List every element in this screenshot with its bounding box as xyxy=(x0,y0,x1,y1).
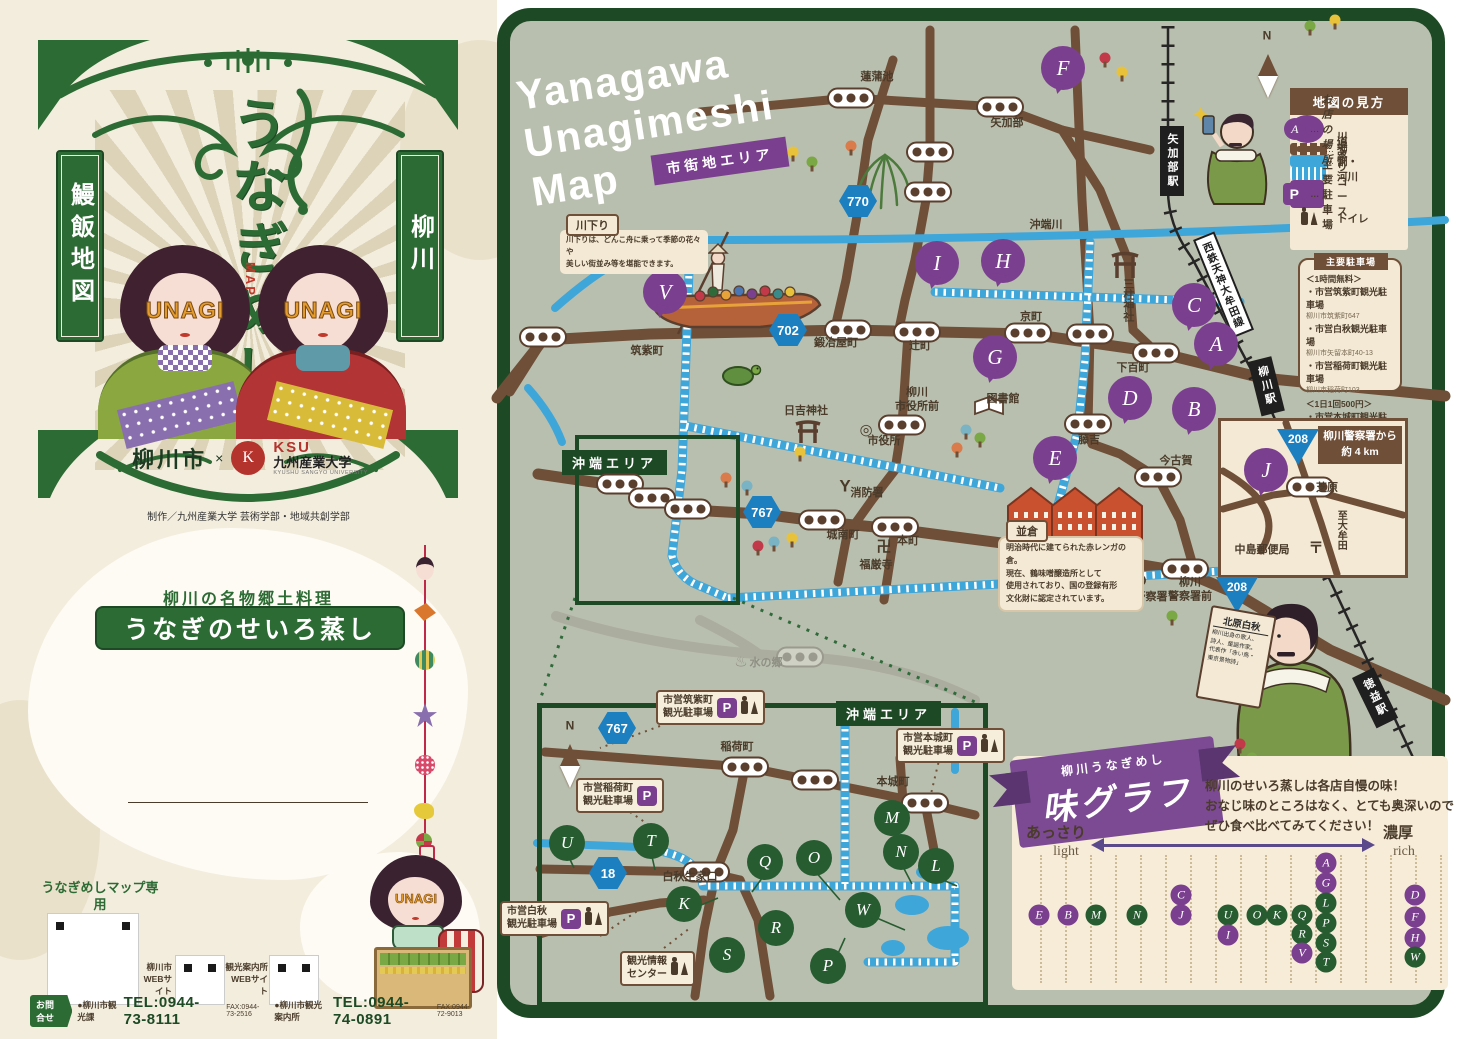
shop-marker: A xyxy=(1194,322,1238,366)
shop-marker-letter: S xyxy=(723,945,732,965)
taste-point: R xyxy=(1292,924,1313,945)
ksu-acronym: KSU xyxy=(273,440,368,457)
legend-label: 川下りコース xyxy=(1337,129,1348,219)
shop-marker: J xyxy=(1244,448,1288,492)
office2-tel: TEL:0944-74-0891 xyxy=(333,994,432,1028)
map-label: Y xyxy=(839,475,850,496)
taste-graph-description: 柳川のせいろ蒸しは各店自慢の味！ おなじ味のところはなく、とても奥深いので ぜひ… xyxy=(1205,776,1454,836)
bus-stop-icon xyxy=(664,499,712,520)
qr-code-info xyxy=(270,956,318,1004)
map-label: 芝原 xyxy=(1316,482,1338,496)
bus-stop-icon xyxy=(1132,343,1180,364)
intro-divider xyxy=(128,802,368,803)
parking-panel-label: 市営本城町 観光駐車場 xyxy=(903,733,953,758)
map-label: 筑紫町 xyxy=(631,345,664,359)
map-label: 柳川 市役所前 xyxy=(895,386,939,414)
shop-marker: F xyxy=(1041,46,1085,90)
taste-grid-column xyxy=(1215,855,1217,983)
woman-mouth xyxy=(180,333,190,337)
tree-icon xyxy=(846,141,857,152)
tree-icon xyxy=(1167,611,1178,622)
legend-icon xyxy=(1296,146,1322,152)
office1-fax: FAX:0944-73-2516 xyxy=(226,1004,269,1018)
map-label: 蓮蒲池 xyxy=(861,71,894,85)
taste-desc-line2: おなじ味のところはなく、とても奥深いので xyxy=(1205,796,1454,816)
parking-list-box: 主要駐車場 ＜1時間無料＞・市営筑紫町観光駐車場柳川市筑紫町647・市営白秋観光… xyxy=(1298,258,1402,392)
taste-point: P xyxy=(1316,913,1337,934)
taste-point: T xyxy=(1316,952,1337,973)
map-label: 今古賀 xyxy=(1160,455,1193,469)
taste-grid-column xyxy=(1365,855,1367,983)
shop-marker: H xyxy=(981,239,1025,283)
kimono-collar xyxy=(158,345,212,371)
bus-stop-icon xyxy=(827,88,875,109)
parking-row: ＜1時間無料＞ xyxy=(1306,273,1394,285)
scale-rich-en: rich xyxy=(1393,844,1415,860)
legend-dots: … xyxy=(1310,189,1319,199)
bus-stop-icon xyxy=(878,415,926,436)
police-header-line1: 柳川警察署から xyxy=(1320,429,1400,445)
shop-marker: B xyxy=(1172,387,1216,431)
tree-icon xyxy=(1305,21,1316,32)
sagemon-temari-green xyxy=(415,650,435,670)
map-label: N xyxy=(566,719,575,734)
shop-marker: G xyxy=(973,335,1017,379)
okinohata-tag-inset: 沖端エリア xyxy=(836,701,941,726)
namikura-tab: 並倉 xyxy=(1006,520,1048,542)
taste-point: M xyxy=(1086,905,1107,926)
web-label-line1: うなぎめしマップ専用 xyxy=(40,880,160,914)
legend-icon-glyph xyxy=(1296,170,1322,177)
parking-panel: 観光情報 センター xyxy=(620,951,695,986)
taste-point: D xyxy=(1405,885,1426,906)
parking-list-title: 主要駐車場 xyxy=(1314,253,1388,270)
taste-point: V xyxy=(1292,943,1313,964)
sagemon-temari-pink xyxy=(415,755,435,775)
sagemon-decoration xyxy=(424,545,426,845)
toilet-icon xyxy=(741,701,758,714)
tree-icon xyxy=(788,147,799,158)
namikura-line1: 明治時代に建てられた赤レンガの倉。 xyxy=(1006,542,1136,568)
scale-light-en: light xyxy=(1053,844,1079,860)
shop-marker-letter: T xyxy=(646,831,655,851)
tree-icon xyxy=(952,443,963,454)
toilet-icon xyxy=(585,912,602,925)
parking-panel-label: 観光情報 センター xyxy=(627,956,667,981)
map-label: 城南町 xyxy=(827,529,860,543)
taste-desc-line3: ぜひ食べ比べてみてください！ xyxy=(1205,816,1454,836)
tree-icon xyxy=(787,533,798,544)
girl-mouth xyxy=(412,917,419,920)
taste-grid-column xyxy=(1115,855,1117,983)
taste-point: J xyxy=(1171,905,1192,926)
tree-icon xyxy=(721,473,732,484)
taste-point: W xyxy=(1405,947,1426,968)
shop-marker: M xyxy=(874,800,910,836)
contact-tag: お問合せ xyxy=(30,995,72,1027)
sagemon-chick xyxy=(414,803,434,819)
shop-marker-letter: I xyxy=(934,251,941,276)
shop-marker-letter: V xyxy=(659,280,672,305)
shop-marker-letter: Q xyxy=(759,852,771,872)
shop-marker-letter: D xyxy=(1122,386,1137,411)
legend-row: A … お店の場所 xyxy=(1290,115,1324,143)
girl-unagi-band: UNAGI xyxy=(372,891,460,906)
tree-icon xyxy=(1117,67,1128,78)
shop-marker: O xyxy=(796,840,832,876)
shop-marker: P xyxy=(810,948,846,984)
taste-point: C xyxy=(1171,885,1192,906)
parking-icon: P xyxy=(561,909,581,929)
taste-grid-column xyxy=(1440,855,1442,983)
taste-point: I xyxy=(1218,925,1239,946)
namikura-line3: 使用されており、国の登録有形 xyxy=(1006,580,1136,593)
dish-title-box: うなぎのせいろ蒸し xyxy=(95,606,405,650)
shop-marker: I xyxy=(915,241,959,285)
legend-title: 地図の見方 xyxy=(1290,88,1408,115)
tree-icon xyxy=(961,425,972,436)
map-label: 京町 xyxy=(1020,311,1042,325)
okinohata-tag-main: 沖端エリア xyxy=(562,450,667,475)
university-name: 九州産業大学 xyxy=(273,456,368,470)
yanagawa-unagimeshi-map-page: 鰻飯地図 柳川 うなぎめし MAP UNAGI UNAGI 柳川市 × K xyxy=(0,0,1459,1039)
kawakudari-callout: 川下りは、どんこ舟に乗って季節の花々や 美しい街並み等を堪能できます。 xyxy=(560,230,708,274)
bus-stop-icon xyxy=(1064,414,1112,435)
cover-banner-right: 柳川 xyxy=(396,150,444,342)
bus-stop-icon xyxy=(1134,467,1182,488)
legend-icon xyxy=(1296,158,1322,164)
university-name-en: KYUSHU SANGYO UNIVERSITY xyxy=(273,470,368,476)
info-web-label: 観光案内所 WEBサイト xyxy=(224,962,268,998)
namikura-callout: 明治時代に建てられた赤レンガの倉。 現在、鶴味噌醸造所として 使用されており、国… xyxy=(998,536,1144,612)
map-label: 至大牟田 xyxy=(1334,510,1347,550)
shop-marker-letter: L xyxy=(931,856,940,876)
shop-marker: L xyxy=(918,848,954,884)
bus-stop-icon xyxy=(776,647,824,668)
taste-point: H xyxy=(1405,928,1426,949)
map-label: 本町 xyxy=(897,535,919,549)
legend-icon xyxy=(1296,212,1322,225)
parking-row: ・市営筑紫町観光駐車場 xyxy=(1306,285,1394,311)
map-label: 下百町 xyxy=(1117,362,1150,376)
contact-bar: お問合せ ●柳川市観光課 TEL:0944-73-8111 FAX:0944-7… xyxy=(30,1000,480,1022)
parking-panel-label: 市営白秋 観光駐車場 xyxy=(507,906,557,931)
legend-icon xyxy=(1296,170,1322,177)
map-label: 本城町 xyxy=(877,776,910,790)
tree-icon xyxy=(742,481,753,492)
ksu-logo: K xyxy=(231,441,265,475)
kawakudari-line2: 美しい街並み等を堪能できます。 xyxy=(566,258,702,270)
legend-dots: … xyxy=(1311,124,1319,134)
tree-icon xyxy=(807,157,818,168)
parking-icon: P xyxy=(717,698,737,718)
taste-point: A xyxy=(1316,853,1337,874)
legend-row: P … 主要駐車場 xyxy=(1290,180,1324,208)
map-label: 福厳寺 xyxy=(860,559,893,573)
bus-stop-icon xyxy=(1066,324,1114,345)
map-label: 卍 xyxy=(876,539,891,558)
kawakudari-line1: 川下りは、どんこ舟に乗って季節の花々や xyxy=(566,234,702,258)
tree-icon xyxy=(753,541,764,552)
shop-marker-letter: N xyxy=(895,842,906,862)
shop-marker-letter: C xyxy=(1187,293,1201,318)
bus-stop-icon xyxy=(1004,323,1052,344)
shop-marker: C xyxy=(1172,283,1216,327)
parking-row: ・市営稲荷町観光駐車場 xyxy=(1306,359,1394,385)
office1-tel: TEL:0944-73-8111 xyxy=(124,994,222,1028)
shop-marker: Q xyxy=(747,844,783,880)
taste-point: S xyxy=(1316,933,1337,954)
parking-row: ・市営白秋観光駐車場 xyxy=(1306,322,1394,348)
legend-icon-glyph: P xyxy=(1283,183,1305,205)
shop-marker: D xyxy=(1108,376,1152,420)
shop-marker-letter: J xyxy=(1261,458,1270,483)
legend-dots: … xyxy=(1325,144,1334,154)
taste-point: K xyxy=(1267,905,1288,926)
shop-marker-letter: K xyxy=(678,894,689,914)
parking-panel-label: 市営筑紫町 観光駐車場 xyxy=(663,695,713,720)
parking-icon: P xyxy=(637,786,657,806)
city-web-label: 柳川市 WEBサイト xyxy=(138,962,172,998)
cover-banner-left: 鰻飯地図 xyxy=(56,150,104,342)
production-credit: 制作／九州産業大学 芸術学部・地域共創学部 xyxy=(0,508,497,523)
shop-marker: V xyxy=(643,270,687,314)
map-label: 鍛冶屋町 xyxy=(814,337,858,351)
namikura-line2: 現在、鶴味噌醸造所として xyxy=(1006,568,1136,581)
map-label: 中島郵便局 xyxy=(1235,544,1290,558)
map-label: 稲荷町 xyxy=(721,741,754,755)
unagi-girl-illustration: UNAGI xyxy=(330,855,495,1015)
taste-point: B xyxy=(1058,905,1079,926)
bus-stop-icon xyxy=(904,182,952,203)
map-label: 水の郷 xyxy=(750,657,783,671)
taste-point: G xyxy=(1316,873,1337,894)
tree-icon xyxy=(1100,53,1111,64)
police-header-line2: 約 4 km xyxy=(1320,445,1400,461)
bus-stop-icon xyxy=(976,97,1024,118)
taste-point: F xyxy=(1405,907,1426,928)
map-label: 白秋生家口 xyxy=(663,871,718,885)
shop-marker-letter: P xyxy=(823,956,833,976)
office1-name: ●柳川市観光課 xyxy=(77,999,118,1023)
shop-marker: T xyxy=(633,823,669,859)
shop-marker-letter: M xyxy=(885,808,899,828)
banner-left-text: 鰻飯地図 xyxy=(63,182,98,310)
map-label: 図書館 xyxy=(987,393,1020,407)
map-label: N xyxy=(1263,29,1272,44)
parking-panel-label: 市営稲荷町 観光駐車場 xyxy=(583,783,633,808)
woman-mouth xyxy=(318,333,328,337)
bus-stop-icon xyxy=(906,142,954,163)
parking-row: 柳川市稲荷町103 xyxy=(1306,385,1394,395)
parking-panel: 市営本城町 観光駐車場 P xyxy=(896,728,1005,763)
shop-marker: N xyxy=(883,834,919,870)
tree-icon xyxy=(975,433,986,444)
bus-stop-icon xyxy=(791,770,839,791)
map-label: 日吉神社 xyxy=(784,405,828,419)
shop-marker-letter: H xyxy=(995,249,1010,274)
legend-icon: A xyxy=(1282,118,1308,140)
university-block: KSU 九州産業大学 KYUSHU SANGYO UNIVERSITY xyxy=(273,440,368,477)
toilet-icon xyxy=(981,739,998,752)
shop-marker: K xyxy=(666,886,702,922)
shop-marker: E xyxy=(1033,436,1077,480)
parking-panel: 市営筑紫町 観光駐車場 P xyxy=(656,690,765,725)
taste-point: E xyxy=(1029,905,1050,926)
cover-woman-right: UNAGI xyxy=(248,245,398,435)
kimono-collar xyxy=(296,345,350,371)
sagemon-doll xyxy=(416,557,434,580)
shop-marker-letter: E xyxy=(1049,446,1062,471)
taste-grid-column xyxy=(1165,855,1167,983)
tree-icon xyxy=(769,537,780,548)
map-label: ◎ xyxy=(859,422,872,441)
legend-dots: … xyxy=(1325,214,1334,224)
city-name: 柳川市 xyxy=(132,442,207,474)
namikura-line4: 文化財に認定されています。 xyxy=(1006,593,1136,606)
unagi-eyeband: UNAGI xyxy=(118,297,252,324)
police-inset-header: 柳川警察署から 約 4 km xyxy=(1318,426,1402,464)
legend-icon-glyph xyxy=(1296,146,1322,152)
parking-panel: 市営白秋 観光駐車場 P xyxy=(500,901,609,936)
map-label: 柳川 警察署前 xyxy=(1168,576,1212,604)
taste-grid-column xyxy=(1390,855,1392,983)
shop-marker-letter: B xyxy=(1188,397,1201,422)
brochure-cover-page: 鰻飯地図 柳川 うなぎめし MAP UNAGI UNAGI 柳川市 × K xyxy=(0,0,497,1039)
taste-point: Q xyxy=(1292,905,1313,926)
scale-light-jp: あっさり xyxy=(1026,822,1086,843)
legend-icon-glyph: A xyxy=(1284,118,1306,140)
station-banner: 矢加部駅 xyxy=(1160,126,1184,196)
parking-row: ＜1日1回500円＞ xyxy=(1306,398,1394,410)
office2-fax: FAX:0944-72-9013 xyxy=(437,1004,480,1018)
legend-label: トイレ xyxy=(1337,211,1369,226)
map-label: ♨ xyxy=(734,654,747,673)
office2-name: ●柳川市観光案内所 xyxy=(274,999,328,1023)
taste-desc-line1: 柳川のせいろ蒸しは各店自慢の味！ xyxy=(1205,776,1454,796)
shop-marker-letter: R xyxy=(771,918,781,938)
taste-grid-column xyxy=(1240,855,1242,983)
collab-cross: × xyxy=(215,450,223,466)
shop-marker-letter: A xyxy=(1210,332,1223,357)
tree-icon xyxy=(795,447,806,458)
bus-stop-icon xyxy=(798,510,846,531)
map-label: 三柱神社 xyxy=(1120,278,1134,322)
shop-marker: W xyxy=(845,892,881,928)
shop-marker-letter: O xyxy=(808,848,820,868)
map-label: 矢加部 xyxy=(991,117,1024,131)
map-label: 〒 xyxy=(1308,540,1323,559)
shop-marker-letter: W xyxy=(856,900,870,920)
unagi-eyeband: UNAGI xyxy=(256,297,390,324)
map-label: 沖端川 xyxy=(1030,219,1063,233)
map-legend: 地図の見方 A … お店の場所 … 道路 … 堀割・河川 … 川下 xyxy=(1290,88,1408,250)
parking-row: 柳川市筑紫町647 xyxy=(1306,311,1394,321)
legend-rows: A … お店の場所 … 道路 … 堀割・河川 … 川下りコース P xyxy=(1290,115,1408,229)
parking-icon: P xyxy=(957,736,977,756)
map-label: 藤吉 xyxy=(1078,434,1100,448)
taste-point: O xyxy=(1247,905,1268,926)
taste-point: L xyxy=(1316,893,1337,914)
toilet-icon xyxy=(671,962,688,975)
shop-marker-letter: G xyxy=(987,345,1002,370)
collaboration-row: 柳川市 × K KSU 九州産業大学 KYUSHU SANGYO UNIVERS… xyxy=(60,436,440,480)
shop-marker-letter: F xyxy=(1057,56,1070,81)
parking-panel: 市営稲荷町 観光駐車場 P xyxy=(576,778,664,813)
parking-row: 柳川市矢留本町40-13 xyxy=(1306,348,1394,358)
shop-marker: U xyxy=(549,825,585,861)
qr-code-main xyxy=(48,914,138,1004)
tree-icon xyxy=(1330,15,1341,26)
map-label: 消防署 xyxy=(851,487,884,501)
taste-scale-arrow xyxy=(1096,844,1370,847)
shop-marker: S xyxy=(709,937,745,973)
legend-row: … トイレ xyxy=(1290,208,1408,229)
taste-point: U xyxy=(1218,905,1239,926)
banner-right-text: 柳川 xyxy=(403,214,438,278)
map-label: 辻町 xyxy=(909,340,931,354)
bus-stop-icon xyxy=(721,757,769,778)
taste-grid-column xyxy=(1340,855,1342,983)
legend-icon: P xyxy=(1281,183,1307,205)
shop-marker-letter: U xyxy=(561,833,573,853)
bus-stop-icon xyxy=(519,327,567,348)
kawakudari-tab: 川下り xyxy=(566,214,619,236)
taste-point: N xyxy=(1127,905,1148,926)
legend-icon-glyph xyxy=(1296,158,1322,164)
shop-marker: R xyxy=(758,910,794,946)
